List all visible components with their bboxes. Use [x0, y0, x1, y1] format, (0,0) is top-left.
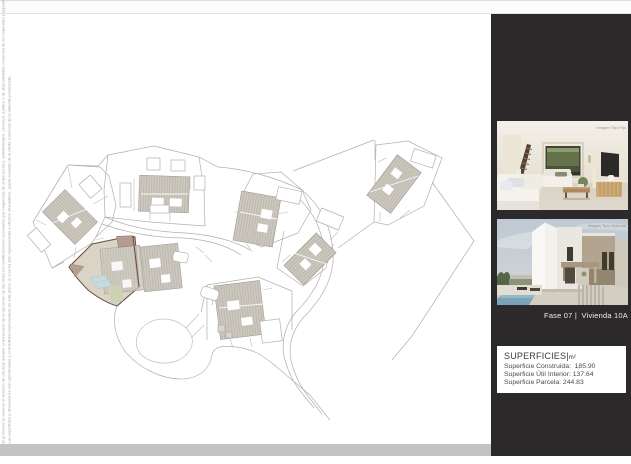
svg-text:Imagen Tipo Vivienda: Imagen Tipo Vivienda [588, 223, 627, 228]
svg-text:Imagen Tipo Fijo: Imagen Tipo Fijo [596, 125, 626, 130]
